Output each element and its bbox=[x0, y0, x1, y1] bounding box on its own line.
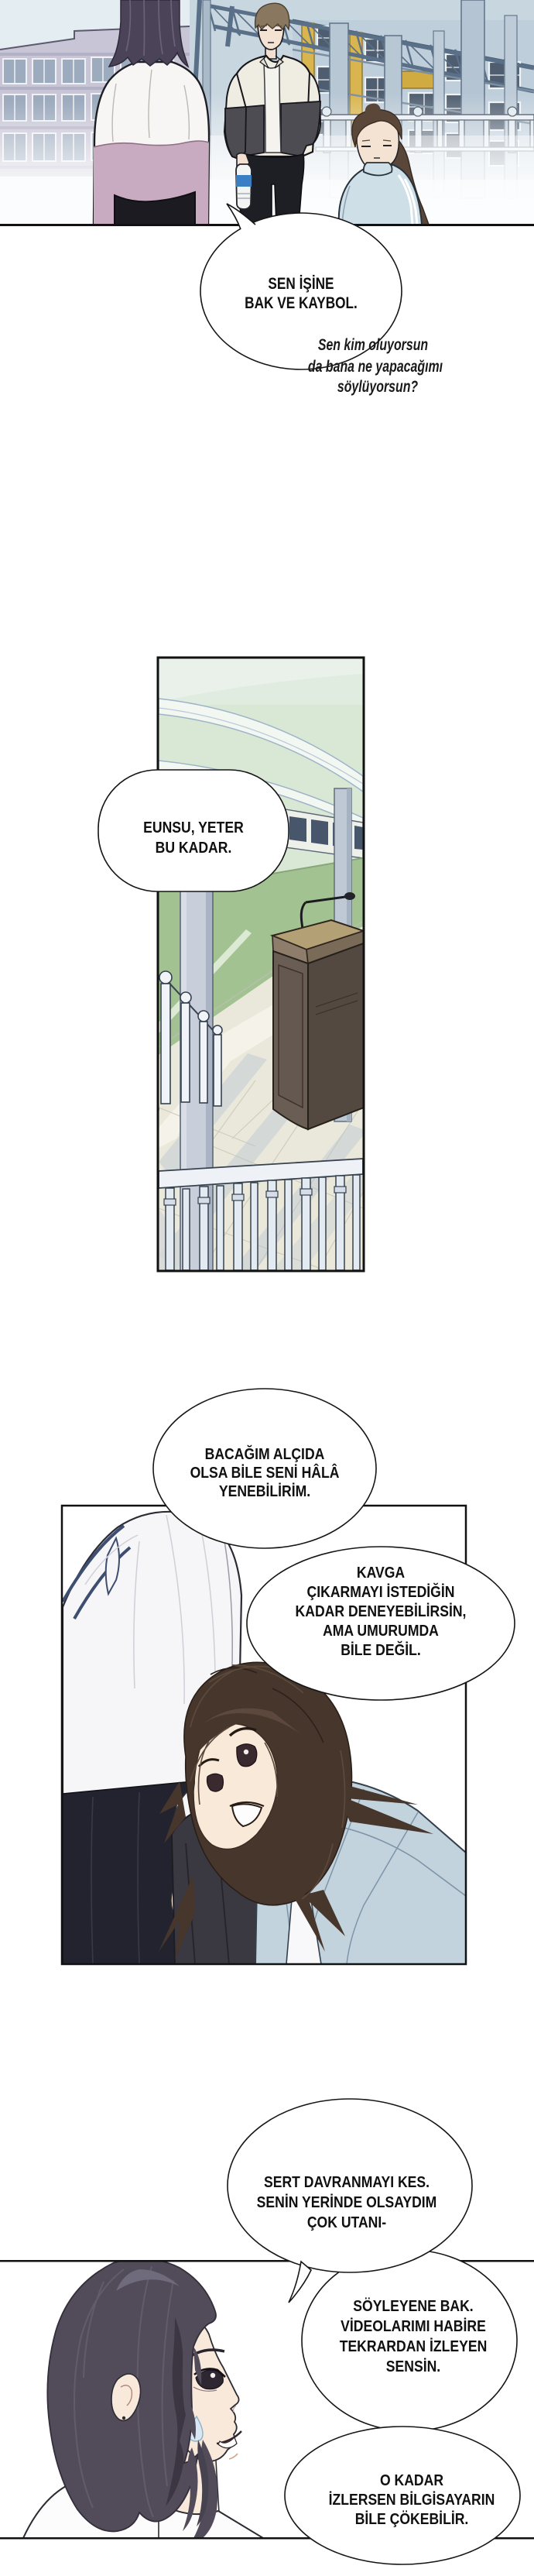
svg-text:VİDEOLARIMI HABİRE: VİDEOLARIMI HABİRE bbox=[341, 2317, 486, 2334]
svg-text:BU KADAR.: BU KADAR. bbox=[156, 839, 232, 856]
svg-text:AMA UMURUMDA: AMA UMURUMDA bbox=[323, 1622, 439, 1639]
svg-text:KADAR DENEYEBİLİRSİN,: KADAR DENEYEBİLİRSİN, bbox=[296, 1602, 467, 1619]
svg-text:BAK VE KAYBOL.: BAK VE KAYBOL. bbox=[245, 295, 358, 313]
svg-text:SEN İŞİNE: SEN İŞİNE bbox=[268, 276, 334, 294]
svg-text:OLSA BİLE SENİ HÂLÂ: OLSA BİLE SENİ HÂLÂ bbox=[190, 1464, 340, 1481]
svg-text:BACAĞIM ALÇIDA: BACAĞIM ALÇIDA bbox=[205, 1445, 325, 1462]
svg-text:KAVGA: KAVGA bbox=[357, 1564, 406, 1581]
svg-text:EUNSU, YETER: EUNSU, YETER bbox=[143, 819, 244, 836]
svg-text:BİLE DEĞİL.: BİLE DEĞİL. bbox=[341, 1641, 421, 1658]
svg-text:İZLERSEN BİLGİSAYARIN: İZLERSEN BİLGİSAYARIN bbox=[329, 2491, 495, 2508]
svg-text:BİLE ÇÖKEBİLİR.: BİLE ÇÖKEBİLİR. bbox=[355, 2510, 469, 2527]
svg-text:ÇOK UTANI-: ÇOK UTANI- bbox=[307, 2214, 386, 2231]
svg-text:söylüyorsun?: söylüyorsun? bbox=[337, 378, 419, 397]
svg-text:Sen kim oluyorsun: Sen kim oluyorsun bbox=[318, 336, 428, 355]
svg-text:SERT DAVRANMAYI KES.: SERT DAVRANMAYI KES. bbox=[264, 2173, 430, 2190]
svg-text:YENEBİLİRİM.: YENEBİLİRİM. bbox=[219, 1482, 310, 1499]
svg-text:ÇIKARMAYI İSTEDİĞİN: ÇIKARMAYI İSTEDİĞİN bbox=[307, 1583, 455, 1600]
svg-text:TEKRARDAN İZLEYEN: TEKRARDAN İZLEYEN bbox=[340, 2337, 488, 2354]
svg-text:SENİN YERİNDE OLSAYDIM: SENİN YERİNDE OLSAYDIM bbox=[257, 2193, 437, 2210]
svg-text:SÖYLEYENE BAK.: SÖYLEYENE BAK. bbox=[353, 2297, 473, 2314]
svg-text:SENSİN.: SENSİN. bbox=[386, 2358, 440, 2375]
svg-text:da bana ne yapacağımı: da bana ne yapacağımı bbox=[308, 358, 443, 376]
svg-text:O KADAR: O KADAR bbox=[380, 2471, 443, 2488]
